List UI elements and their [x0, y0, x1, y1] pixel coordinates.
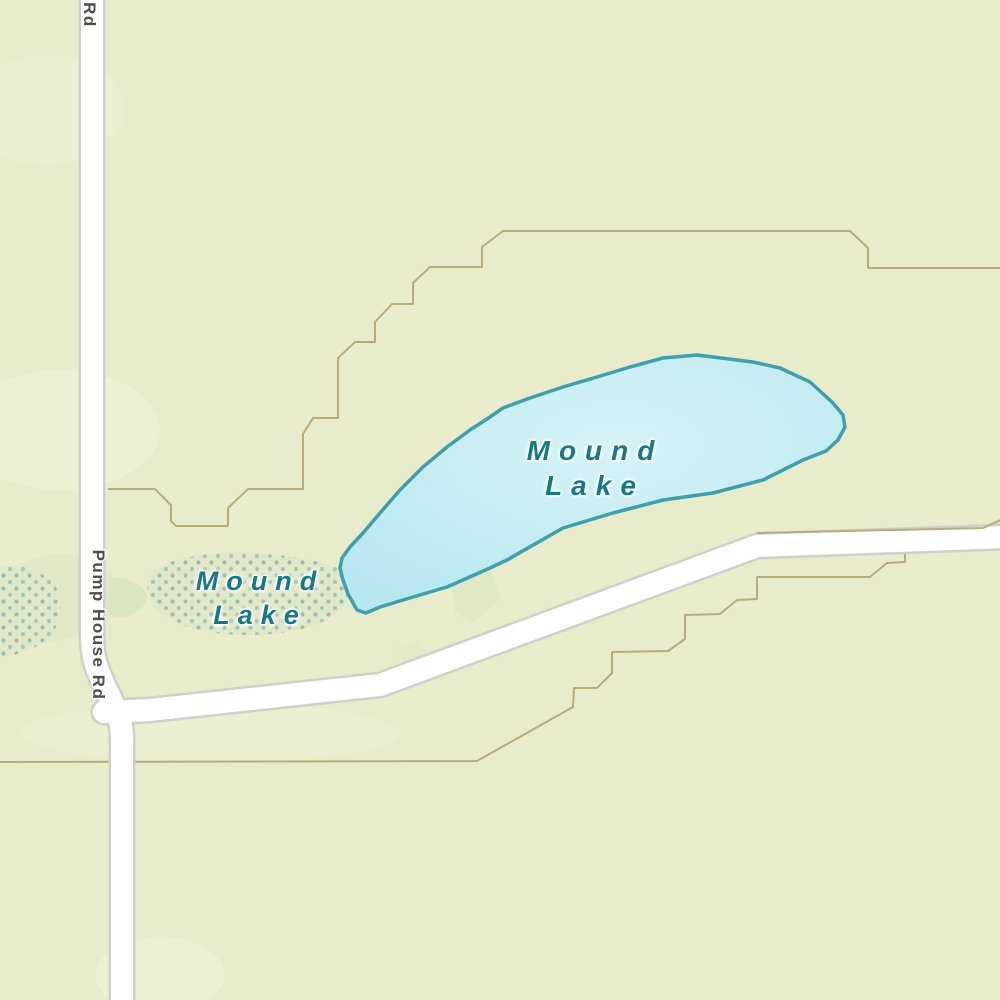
map-tile-layer — [0, 0, 1000, 1000]
map-canvas[interactable]: Mound Lake Mound Lake Pump House Rd Rd — [0, 0, 1000, 1000]
